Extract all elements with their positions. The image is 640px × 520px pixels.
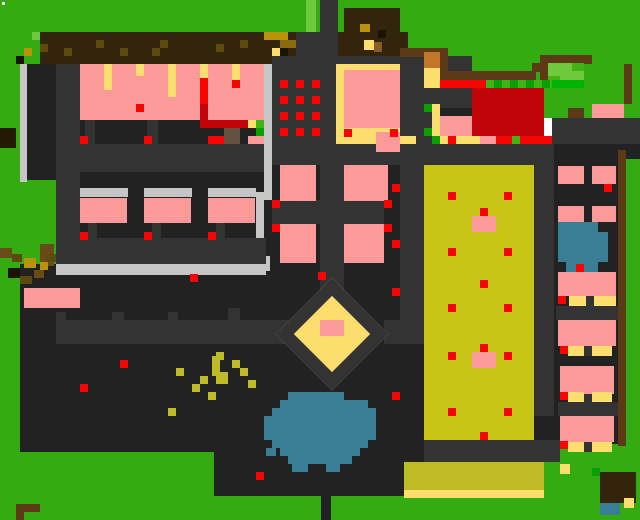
map-rect-road — [296, 32, 322, 58]
red-dot — [280, 128, 288, 136]
map-rect-brownFence — [440, 71, 536, 80]
map-rect-sand — [424, 68, 440, 88]
map-rect-sand — [568, 392, 584, 402]
map-rect-olive2 — [200, 376, 208, 384]
map-rect-sand — [624, 498, 634, 508]
red-dot — [384, 200, 392, 208]
red-dot — [136, 104, 144, 112]
map-rect-road — [88, 222, 97, 238]
map-rect-black — [8, 268, 20, 278]
map-rect-greenDark — [256, 128, 264, 136]
red-dot — [296, 112, 304, 120]
map-rect-road — [416, 136, 432, 144]
map-rect-pink — [592, 206, 616, 222]
map-rect-pink — [280, 165, 316, 201]
map-rect-greenDark — [424, 104, 432, 112]
map-rect-road — [436, 88, 472, 108]
red-dot — [280, 96, 288, 104]
map-rect-darkRed — [200, 104, 208, 128]
map-rect-blue — [600, 503, 620, 515]
map-rect-sand — [104, 64, 112, 90]
map-rect-olive — [424, 165, 534, 440]
map-rect-blue — [272, 440, 368, 448]
map-rect-olive2 — [208, 392, 216, 400]
red-dot — [144, 136, 152, 144]
red-dot — [480, 432, 488, 440]
red-dot — [190, 274, 198, 282]
red-dot — [80, 384, 88, 392]
red-dot — [560, 346, 568, 354]
map-rect-oliveDark — [40, 44, 48, 52]
map-rect-grayL — [208, 188, 256, 197]
map-rect-grayL — [20, 64, 27, 182]
red-dot — [390, 129, 398, 137]
red-dot — [272, 224, 280, 232]
map-rect-green — [331, 496, 424, 520]
red-dot — [296, 80, 304, 88]
map-rect-oliveDark — [12, 254, 22, 262]
map-rect-road — [400, 56, 424, 144]
map-rect-red — [200, 78, 208, 104]
red-dot — [312, 96, 320, 104]
map-rect-sand — [592, 346, 612, 356]
map-rect-brownGray — [224, 128, 240, 144]
cursor-dot — [2, 2, 5, 5]
map-rect-gold — [264, 32, 288, 40]
map-rect-greenDark — [432, 136, 440, 144]
red-dot — [448, 304, 456, 312]
map-rect-pink — [80, 198, 127, 223]
red-dot — [504, 408, 512, 416]
map-rect-road — [586, 296, 594, 306]
map-rect-road — [556, 306, 620, 320]
map-rect-oliveDark — [20, 276, 32, 284]
map-rect-road — [336, 56, 400, 64]
map-rect-sand — [440, 136, 448, 144]
map-rect-road — [56, 144, 264, 172]
map-rect-road — [228, 308, 240, 320]
map-rect-gold — [24, 258, 36, 268]
red-dot — [256, 472, 264, 480]
map-rect-oliveDark — [240, 40, 248, 48]
map-rect-grayL — [144, 188, 192, 197]
map-rect-sand — [168, 64, 176, 97]
red-dot — [560, 392, 568, 400]
map-rect-sand — [272, 48, 280, 56]
red-dot — [448, 352, 456, 360]
map-rect-gold — [40, 262, 48, 270]
map-rect-gold — [360, 24, 370, 32]
map-rect-brownMid — [0, 248, 12, 258]
map-rect-olive2 — [212, 356, 220, 376]
map-rect-blue — [288, 456, 352, 464]
red-dot — [558, 296, 566, 304]
map-rect-darkRed — [472, 88, 544, 136]
map-rect-grayL — [56, 264, 266, 275]
red-dot — [120, 360, 128, 368]
red-dot — [560, 441, 568, 449]
map-rect-gold — [24, 48, 32, 56]
map-rect-pink — [472, 216, 496, 232]
map-rect-road — [112, 312, 124, 320]
red-dot — [344, 129, 352, 137]
map-rect-greenMid — [512, 136, 520, 144]
map-rect-road — [584, 346, 592, 356]
map-rect-pink — [558, 206, 584, 222]
map-rect-pink — [280, 224, 316, 263]
red-dot — [480, 280, 488, 288]
map-rect-road — [384, 320, 424, 344]
map-rect-blue — [266, 448, 276, 456]
map-rect-road — [168, 312, 178, 320]
red-dot — [296, 96, 304, 104]
map-rect-pink — [248, 136, 264, 144]
map-rect-green — [424, 498, 544, 520]
red-dot — [480, 208, 488, 216]
map-rect-olive2 — [220, 372, 228, 384]
red-dot — [504, 192, 512, 200]
map-rect-blue — [558, 232, 608, 262]
map-rect-sand — [568, 346, 584, 356]
map-rect-olive2 — [168, 408, 176, 416]
map-rect-red — [432, 80, 486, 88]
red-dot — [208, 232, 216, 240]
map-rect-sand — [456, 136, 480, 144]
red-dot — [80, 136, 88, 144]
map-rect-olive2 — [248, 380, 256, 388]
map-rect-pink — [560, 416, 614, 442]
map-rect-road — [558, 402, 620, 416]
red-dot — [504, 352, 512, 360]
map-rect-road — [320, 0, 338, 60]
map-rect-road — [584, 442, 592, 452]
map-rect-pink — [592, 104, 624, 118]
red-dot — [232, 80, 240, 88]
red-dot — [296, 128, 304, 136]
map-rect-sand — [248, 120, 256, 128]
map-rect-green — [214, 496, 321, 520]
map-rect-sand — [404, 490, 544, 498]
map-rect-sand — [592, 392, 612, 402]
map-rect-blackish — [0, 128, 16, 148]
map-rect-grayL — [264, 64, 272, 200]
map-rect-olive2 — [176, 368, 184, 376]
red-dot — [392, 184, 400, 192]
map-rect-brown — [344, 8, 400, 34]
map-rect-road — [424, 440, 560, 462]
red-dot — [504, 248, 512, 256]
map-rect-greenLight — [32, 32, 40, 40]
map-rect-sand — [592, 442, 612, 452]
map-rect-greenDark — [494, 80, 502, 88]
red-dot — [392, 288, 400, 296]
red-dot — [312, 112, 320, 120]
map-rect-red — [520, 136, 552, 144]
red-dot — [312, 80, 320, 88]
red-dot — [448, 408, 456, 416]
red-dot — [480, 344, 488, 352]
map-rect-blue — [288, 392, 344, 400]
map-rect-pink — [344, 165, 388, 201]
map-rect-pink — [344, 70, 400, 128]
roundabout-center-tile — [320, 320, 344, 336]
map-rect-pink — [560, 366, 614, 394]
map-rect-copper — [374, 42, 382, 52]
map-rect-olive2 — [192, 384, 200, 392]
town-map — [0, 0, 640, 520]
map-rect-oliveDark — [216, 44, 224, 52]
map-rect-olive2 — [240, 368, 248, 376]
map-rect-pink — [558, 166, 584, 184]
map-rect-brownFence — [16, 504, 40, 512]
map-rect-blue — [326, 464, 340, 472]
map-rect-pink — [384, 136, 400, 144]
map-rect-road — [56, 238, 266, 264]
map-rect-orange — [424, 52, 440, 68]
map-rect-greenDark — [424, 128, 432, 136]
map-rect-brownFence — [16, 512, 24, 520]
map-rect-greenMid — [256, 120, 264, 128]
map-rect-red — [496, 136, 512, 144]
map-rect-goldDark — [280, 40, 296, 48]
map-rect-pink — [558, 320, 616, 346]
map-rect-red — [208, 136, 224, 144]
map-rect-sand — [569, 296, 586, 306]
map-rect-greenDark — [542, 80, 550, 88]
map-rect-sand — [568, 442, 584, 452]
map-rect-sand — [200, 64, 208, 78]
map-rect-pink — [144, 198, 191, 223]
map-rect-brownFence — [624, 64, 632, 104]
map-rect-oliveDark — [152, 48, 160, 56]
map-rect-road — [216, 222, 225, 238]
red-dot — [272, 200, 280, 208]
map-rect-sand — [560, 464, 570, 474]
map-rect-oliveDark — [160, 40, 168, 48]
map-rect-black — [16, 56, 24, 64]
map-rect-olive2 — [232, 360, 240, 368]
map-rect-road — [400, 144, 424, 320]
map-rect-darkRed — [208, 120, 248, 128]
map-rect-sand — [136, 64, 144, 76]
map-rect-greenBright — [552, 80, 584, 88]
map-rect-road — [56, 320, 290, 344]
map-rect-oliveDark — [120, 48, 128, 56]
map-rect-pink — [480, 136, 496, 144]
map-rect-pink — [592, 166, 616, 184]
red-dot — [448, 248, 456, 256]
map-rect-blue — [280, 448, 360, 456]
map-rect-greenDark — [592, 468, 600, 476]
map-rect-pink — [472, 352, 496, 368]
red-dot — [80, 232, 88, 240]
red-dot — [280, 112, 288, 120]
map-rect-oliveDark — [46, 254, 56, 262]
red-dot — [576, 264, 584, 272]
red-dot — [392, 240, 400, 248]
map-rect-oliveDark — [96, 40, 104, 48]
red-dot — [144, 232, 152, 240]
map-rect-pink — [208, 198, 255, 223]
map-rect-olive2 — [404, 462, 544, 490]
map-rect-pink — [558, 272, 616, 296]
map-rect-road — [424, 112, 432, 128]
red-dot — [504, 304, 512, 312]
map-rect-black — [378, 30, 386, 38]
map-rect-road — [56, 312, 66, 320]
map-rect-pink — [344, 224, 384, 263]
map-rect-blue — [558, 222, 598, 232]
map-rect-oliveDark — [64, 48, 72, 56]
map-rect-road — [552, 118, 640, 144]
red-dot — [604, 184, 612, 192]
map-rect-greenMid — [572, 63, 584, 71]
red-dot — [280, 80, 288, 88]
map-rect-sand — [364, 40, 374, 50]
map-rect-sand — [400, 136, 416, 144]
map-rect-blue — [292, 464, 308, 472]
map-rect-greenDark — [526, 80, 534, 88]
map-rect-greenDark — [510, 80, 518, 88]
red-dot — [392, 392, 400, 400]
map-rect-grayL — [80, 188, 128, 197]
map-rect-sand — [594, 296, 616, 306]
red-dot — [384, 224, 392, 232]
map-rect-blue — [264, 416, 376, 440]
map-rect-road — [152, 222, 161, 238]
map-rect-brownFence — [568, 108, 584, 118]
red-dot — [318, 272, 326, 280]
map-rect-brownFence — [532, 63, 540, 72]
map-rect-red — [448, 136, 456, 144]
map-rect-pink — [24, 288, 80, 308]
map-rect-brownFence — [618, 150, 626, 446]
red-dot — [448, 192, 456, 200]
map-rect-road — [534, 144, 554, 416]
map-rect-blue — [280, 400, 368, 408]
map-rect-pink — [440, 116, 472, 136]
red-dot — [312, 128, 320, 136]
map-rect-greenLight — [306, 0, 316, 32]
map-rect-brownMid — [34, 270, 44, 278]
map-rect-blue — [272, 408, 376, 416]
